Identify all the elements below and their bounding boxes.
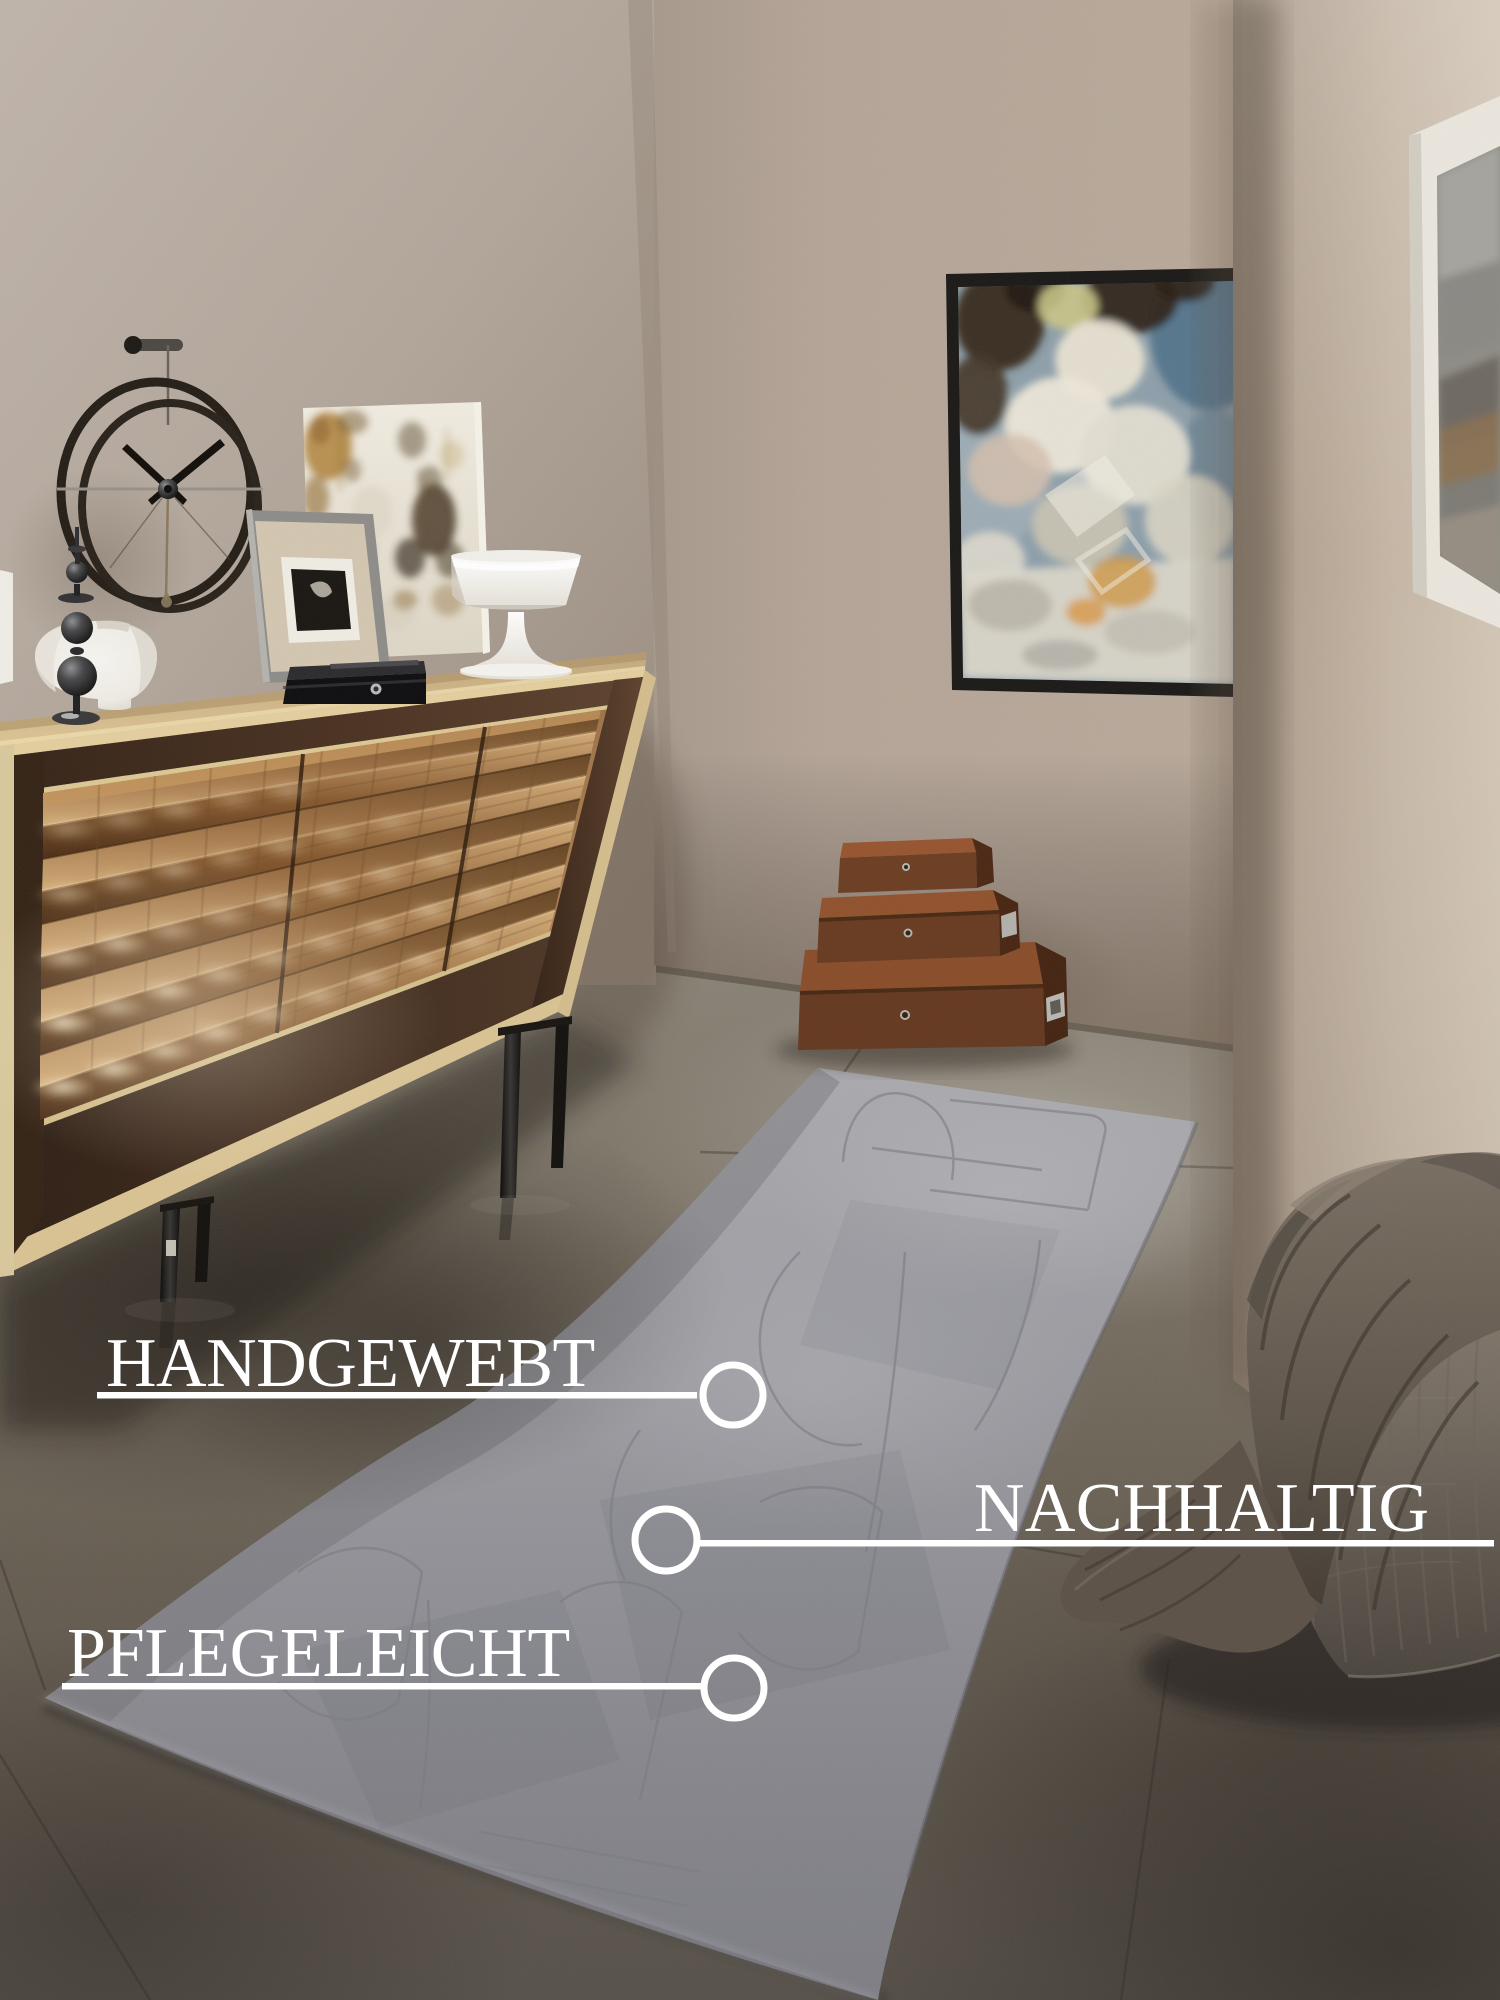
svg-text:NACHHALTIG: NACHHALTIG bbox=[974, 1470, 1429, 1547]
svg-text:PFLEGELEICHT: PFLEGELEICHT bbox=[67, 1615, 570, 1692]
svg-text:HANDGEWEBT: HANDGEWEBT bbox=[106, 1325, 595, 1402]
